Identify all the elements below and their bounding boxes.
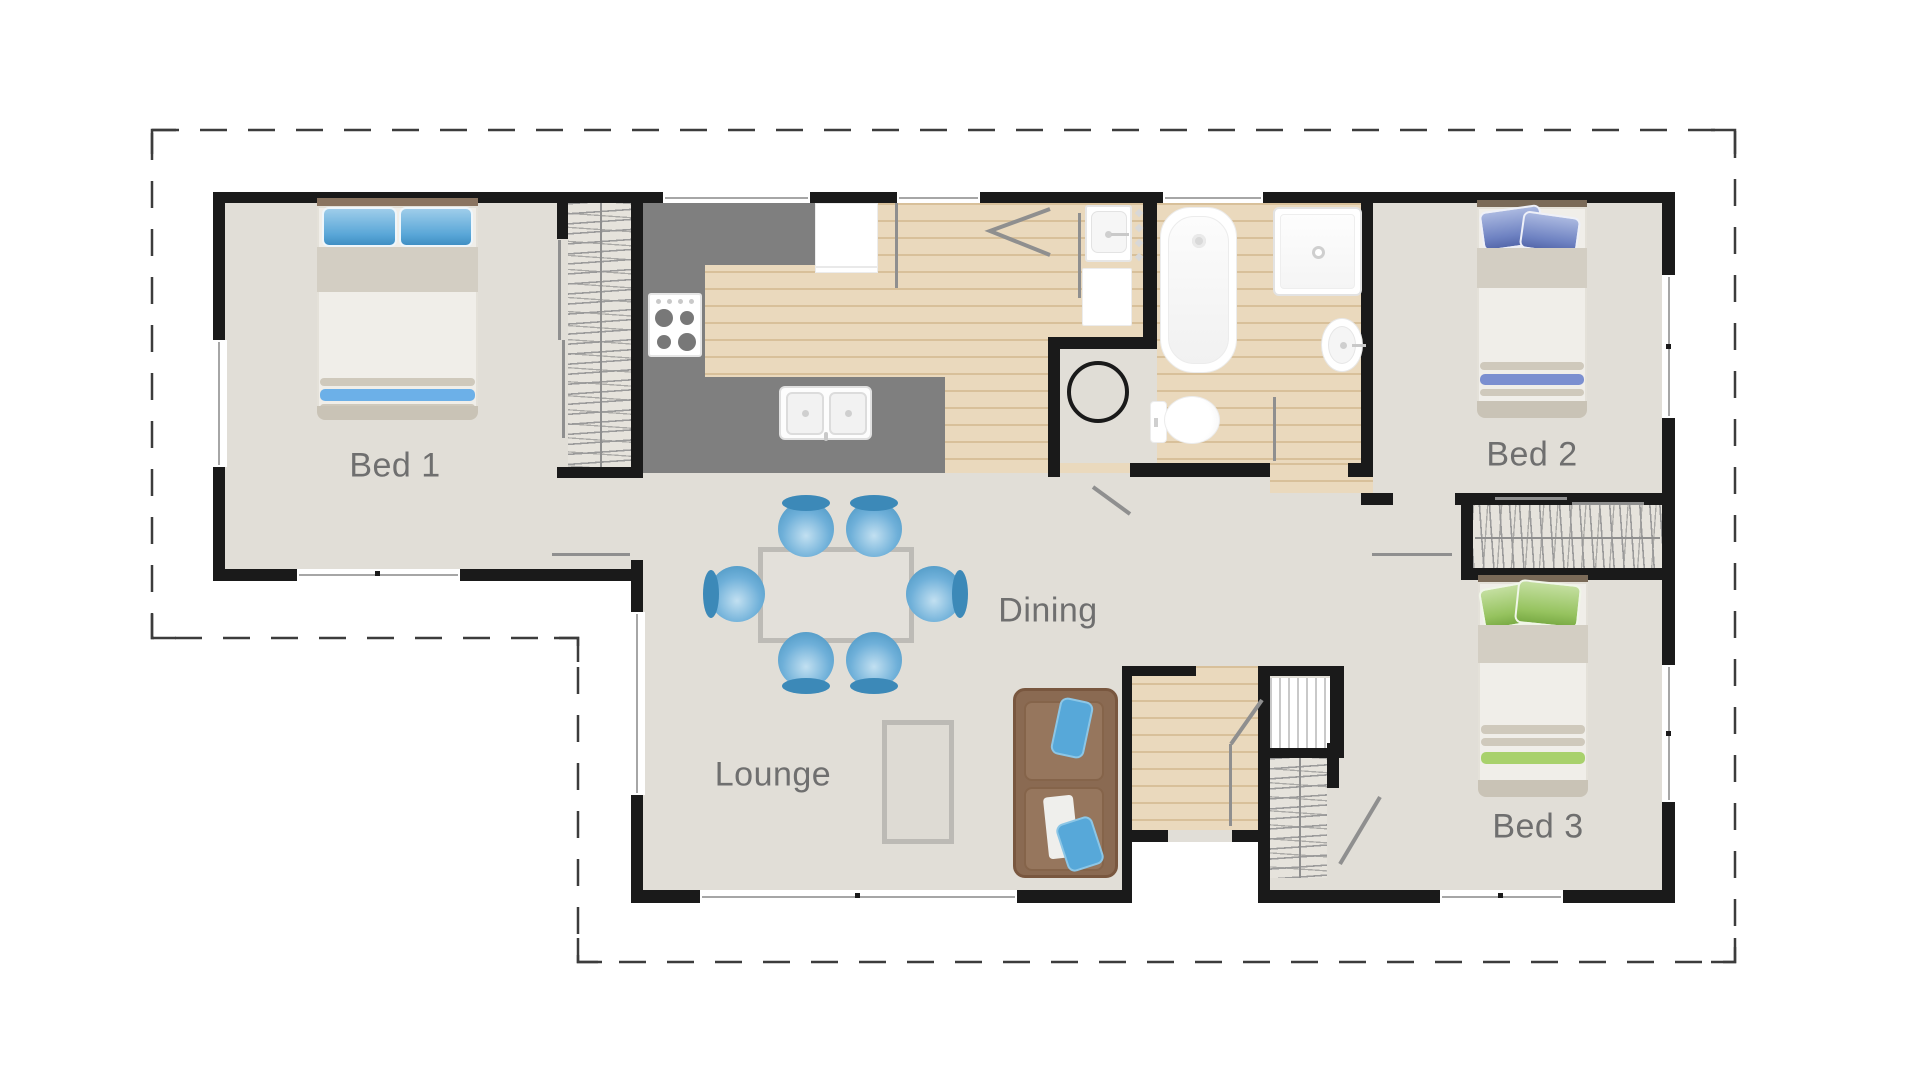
room-label-bed3: Bed 3 — [1492, 808, 1583, 847]
floor-plan: Bed 1 Bed 2 Bed 3 Dining Lounge — [0, 0, 1920, 1080]
hall-door-swing — [1093, 487, 1130, 514]
bed3-door-swing — [1340, 797, 1380, 864]
room-label-bed1: Bed 1 — [349, 447, 440, 486]
room-label-dining: Dining — [998, 592, 1097, 631]
boundary-and-doors — [0, 0, 1920, 1080]
bifold-door — [990, 209, 1050, 255]
room-label-bed2: Bed 2 — [1486, 436, 1577, 475]
front-door-swing — [1231, 700, 1262, 744]
room-label-lounge: Lounge — [715, 756, 831, 795]
